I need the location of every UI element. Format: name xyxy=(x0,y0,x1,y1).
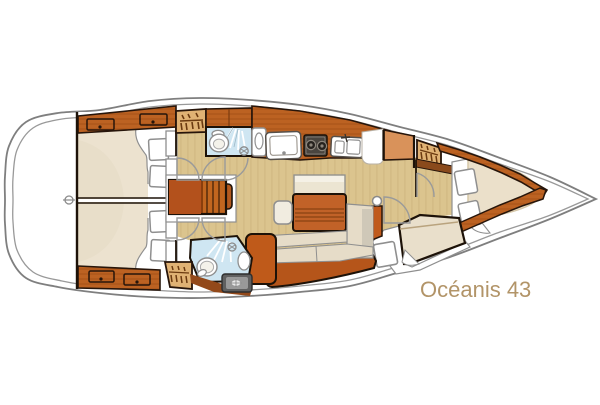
svg-text:Océanis 43: Océanis 43 xyxy=(420,277,531,302)
